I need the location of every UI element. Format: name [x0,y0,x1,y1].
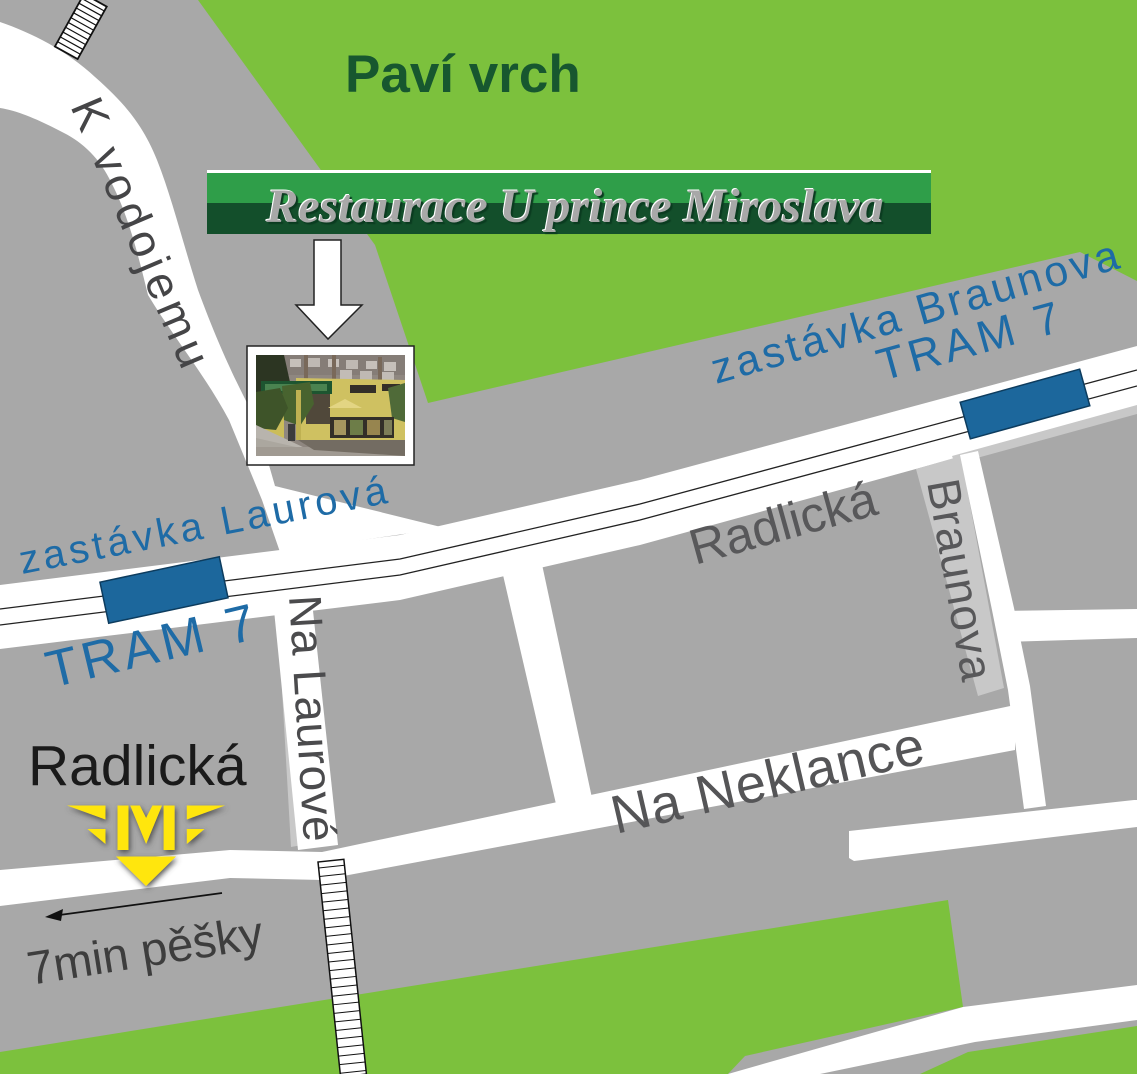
svg-text:Radlická: Radlická [28,734,247,798]
svg-text:Paví vrch: Paví vrch [345,45,581,104]
svg-text:Restaurace U prince Miroslava: Restaurace U prince Miroslava [265,180,883,233]
